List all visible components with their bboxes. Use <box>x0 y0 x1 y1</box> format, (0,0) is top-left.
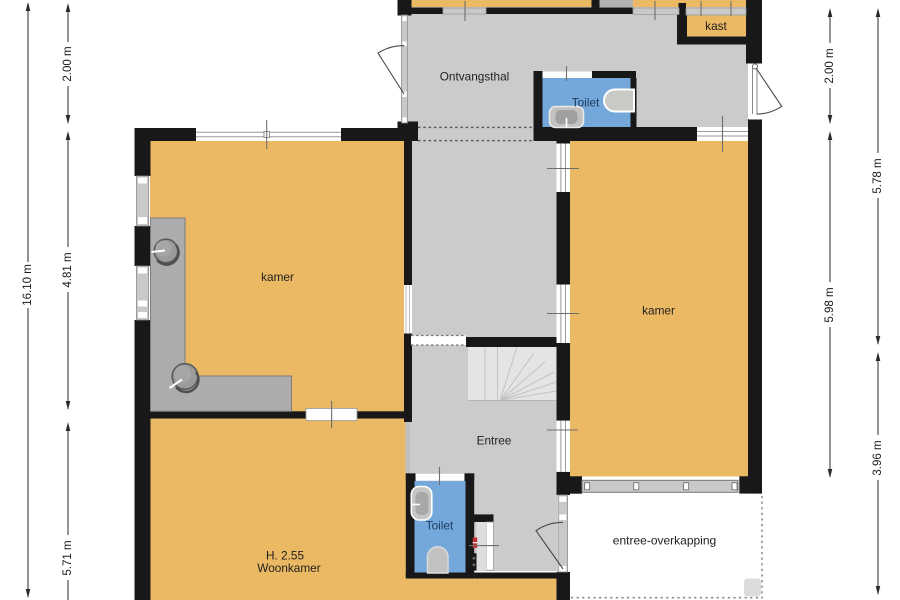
svg-text:Woonkamer: Woonkamer <box>257 561 320 575</box>
svg-text:16.10 m: 16.10 m <box>22 264 34 306</box>
svg-text:Toilet: Toilet <box>572 95 600 109</box>
svg-text:2.00 m: 2.00 m <box>62 46 74 81</box>
svg-text:4.81 m: 4.81 m <box>62 252 74 287</box>
svg-text:Entree: Entree <box>477 434 512 448</box>
svg-text:5.98 m: 5.98 m <box>824 287 836 322</box>
svg-text:2.00 m: 2.00 m <box>824 48 836 83</box>
svg-text:Toilet: Toilet <box>426 519 454 533</box>
svg-text:entree-overkapping: entree-overkapping <box>613 533 716 547</box>
svg-text:3.96 m: 3.96 m <box>872 440 884 475</box>
svg-text:kast: kast <box>705 19 727 33</box>
svg-text:5.71 m: 5.71 m <box>62 540 74 575</box>
svg-text:5.78 m: 5.78 m <box>872 158 884 193</box>
svg-text:Ontvangsthal: Ontvangsthal <box>440 69 510 83</box>
svg-text:kamer: kamer <box>261 270 294 284</box>
svg-text:kamer: kamer <box>642 304 675 318</box>
